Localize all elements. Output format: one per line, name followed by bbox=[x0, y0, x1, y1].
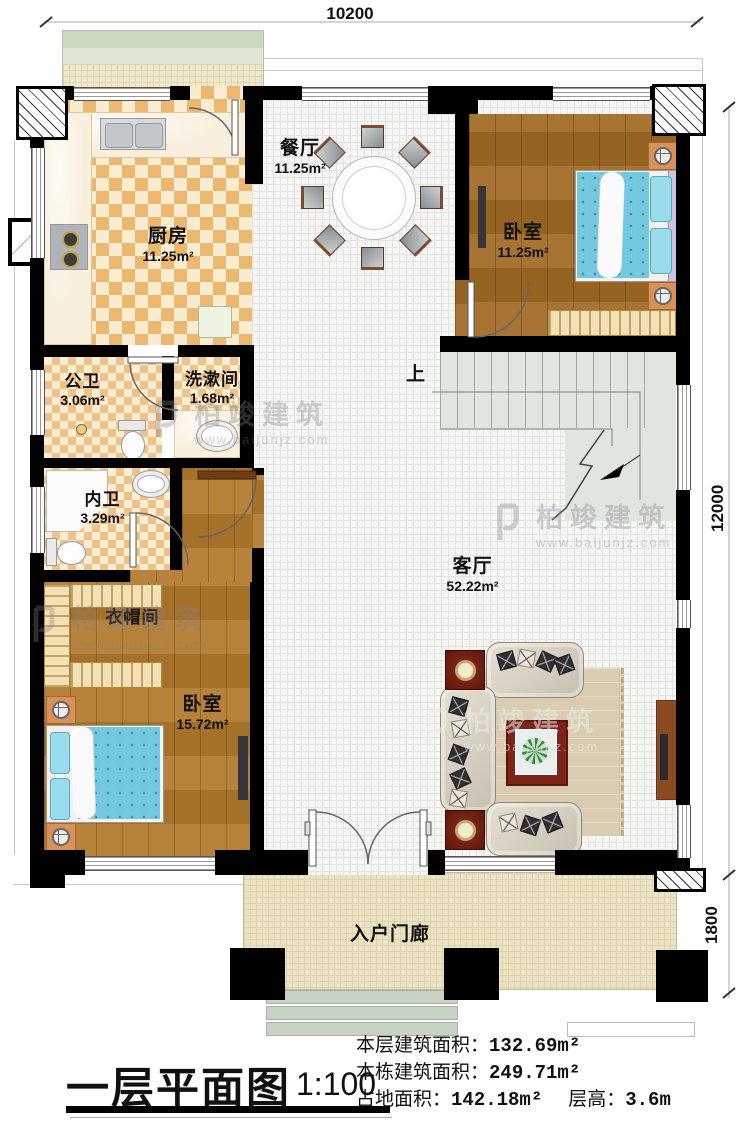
door-arc bbox=[474, 282, 529, 337]
room-label-bedroom-bottom: 卧室15.72m² bbox=[150, 694, 255, 732]
stair-handrail bbox=[440, 429, 612, 446]
dimension-top: 10200 bbox=[310, 4, 390, 24]
dimension-right-main: 12000 bbox=[708, 452, 728, 532]
watermark: 柏竣建筑www.baijunjz.com bbox=[150, 393, 330, 447]
stat-floor-area: 本层建筑面积：132.69m² bbox=[356, 1033, 671, 1060]
stat-footprint-and-height: 占地面积：142.18m²层高：3.6m bbox=[356, 1087, 671, 1114]
floor-plan-canvas: 10200 12000 1800 餐厅11.25m² 厨房11.25m² 卧室1… bbox=[0, 0, 750, 1129]
room-label-public-bath: 公卫3.06m² bbox=[40, 372, 125, 408]
door-leaf bbox=[309, 810, 316, 866]
watermark: 柏竣建筑www.baijunjz.com bbox=[492, 496, 672, 550]
title-underline bbox=[66, 1106, 390, 1113]
room-label-bedroom-top: 卧室11.25m² bbox=[468, 222, 578, 260]
stat-building-area: 本栋建筑面积：249.71m² bbox=[356, 1060, 671, 1087]
room-label-living: 客厅52.22m² bbox=[415, 556, 530, 594]
door-arc bbox=[198, 479, 256, 537]
area-stats: 本层建筑面积：132.69m² 本栋建筑面积：249.71m² 占地面积：142… bbox=[356, 1033, 671, 1114]
watermark-logo-icon bbox=[150, 399, 186, 441]
room-label-ensuite-bath: 内卫3.29m² bbox=[60, 490, 145, 526]
room-label-kitchen: 厨房11.25m² bbox=[118, 226, 218, 264]
room-label-porch: 入户门廊 bbox=[330, 924, 450, 946]
stair-handrail bbox=[432, 392, 640, 500]
door-leaf bbox=[198, 471, 256, 479]
door-leaf bbox=[232, 100, 238, 155]
door-handle bbox=[305, 822, 310, 835]
stair-up-label: 上 bbox=[402, 364, 430, 386]
watermark-logo-icon bbox=[420, 706, 456, 748]
door-arc bbox=[368, 812, 420, 864]
room-label-dining: 餐厅11.25m² bbox=[250, 138, 350, 176]
watermark-logo-icon bbox=[492, 502, 528, 544]
door-leaf bbox=[128, 357, 178, 363]
watermark: 柏竣建筑www.baijunjz.com bbox=[28, 598, 208, 652]
door-arc bbox=[189, 108, 236, 155]
watermark-logo-icon bbox=[28, 604, 64, 646]
stair-direction-arrow bbox=[600, 464, 624, 480]
linework-overlay bbox=[0, 0, 750, 1129]
door-leaf bbox=[468, 282, 474, 337]
door-arc bbox=[316, 812, 368, 864]
dimension-right-porch: 1800 bbox=[702, 892, 722, 944]
watermark: 柏竣建筑www.baijunjz.com bbox=[420, 700, 600, 754]
door-leaf bbox=[420, 810, 427, 866]
title-underline-thin bbox=[70, 1117, 392, 1118]
door-handle bbox=[426, 822, 431, 835]
